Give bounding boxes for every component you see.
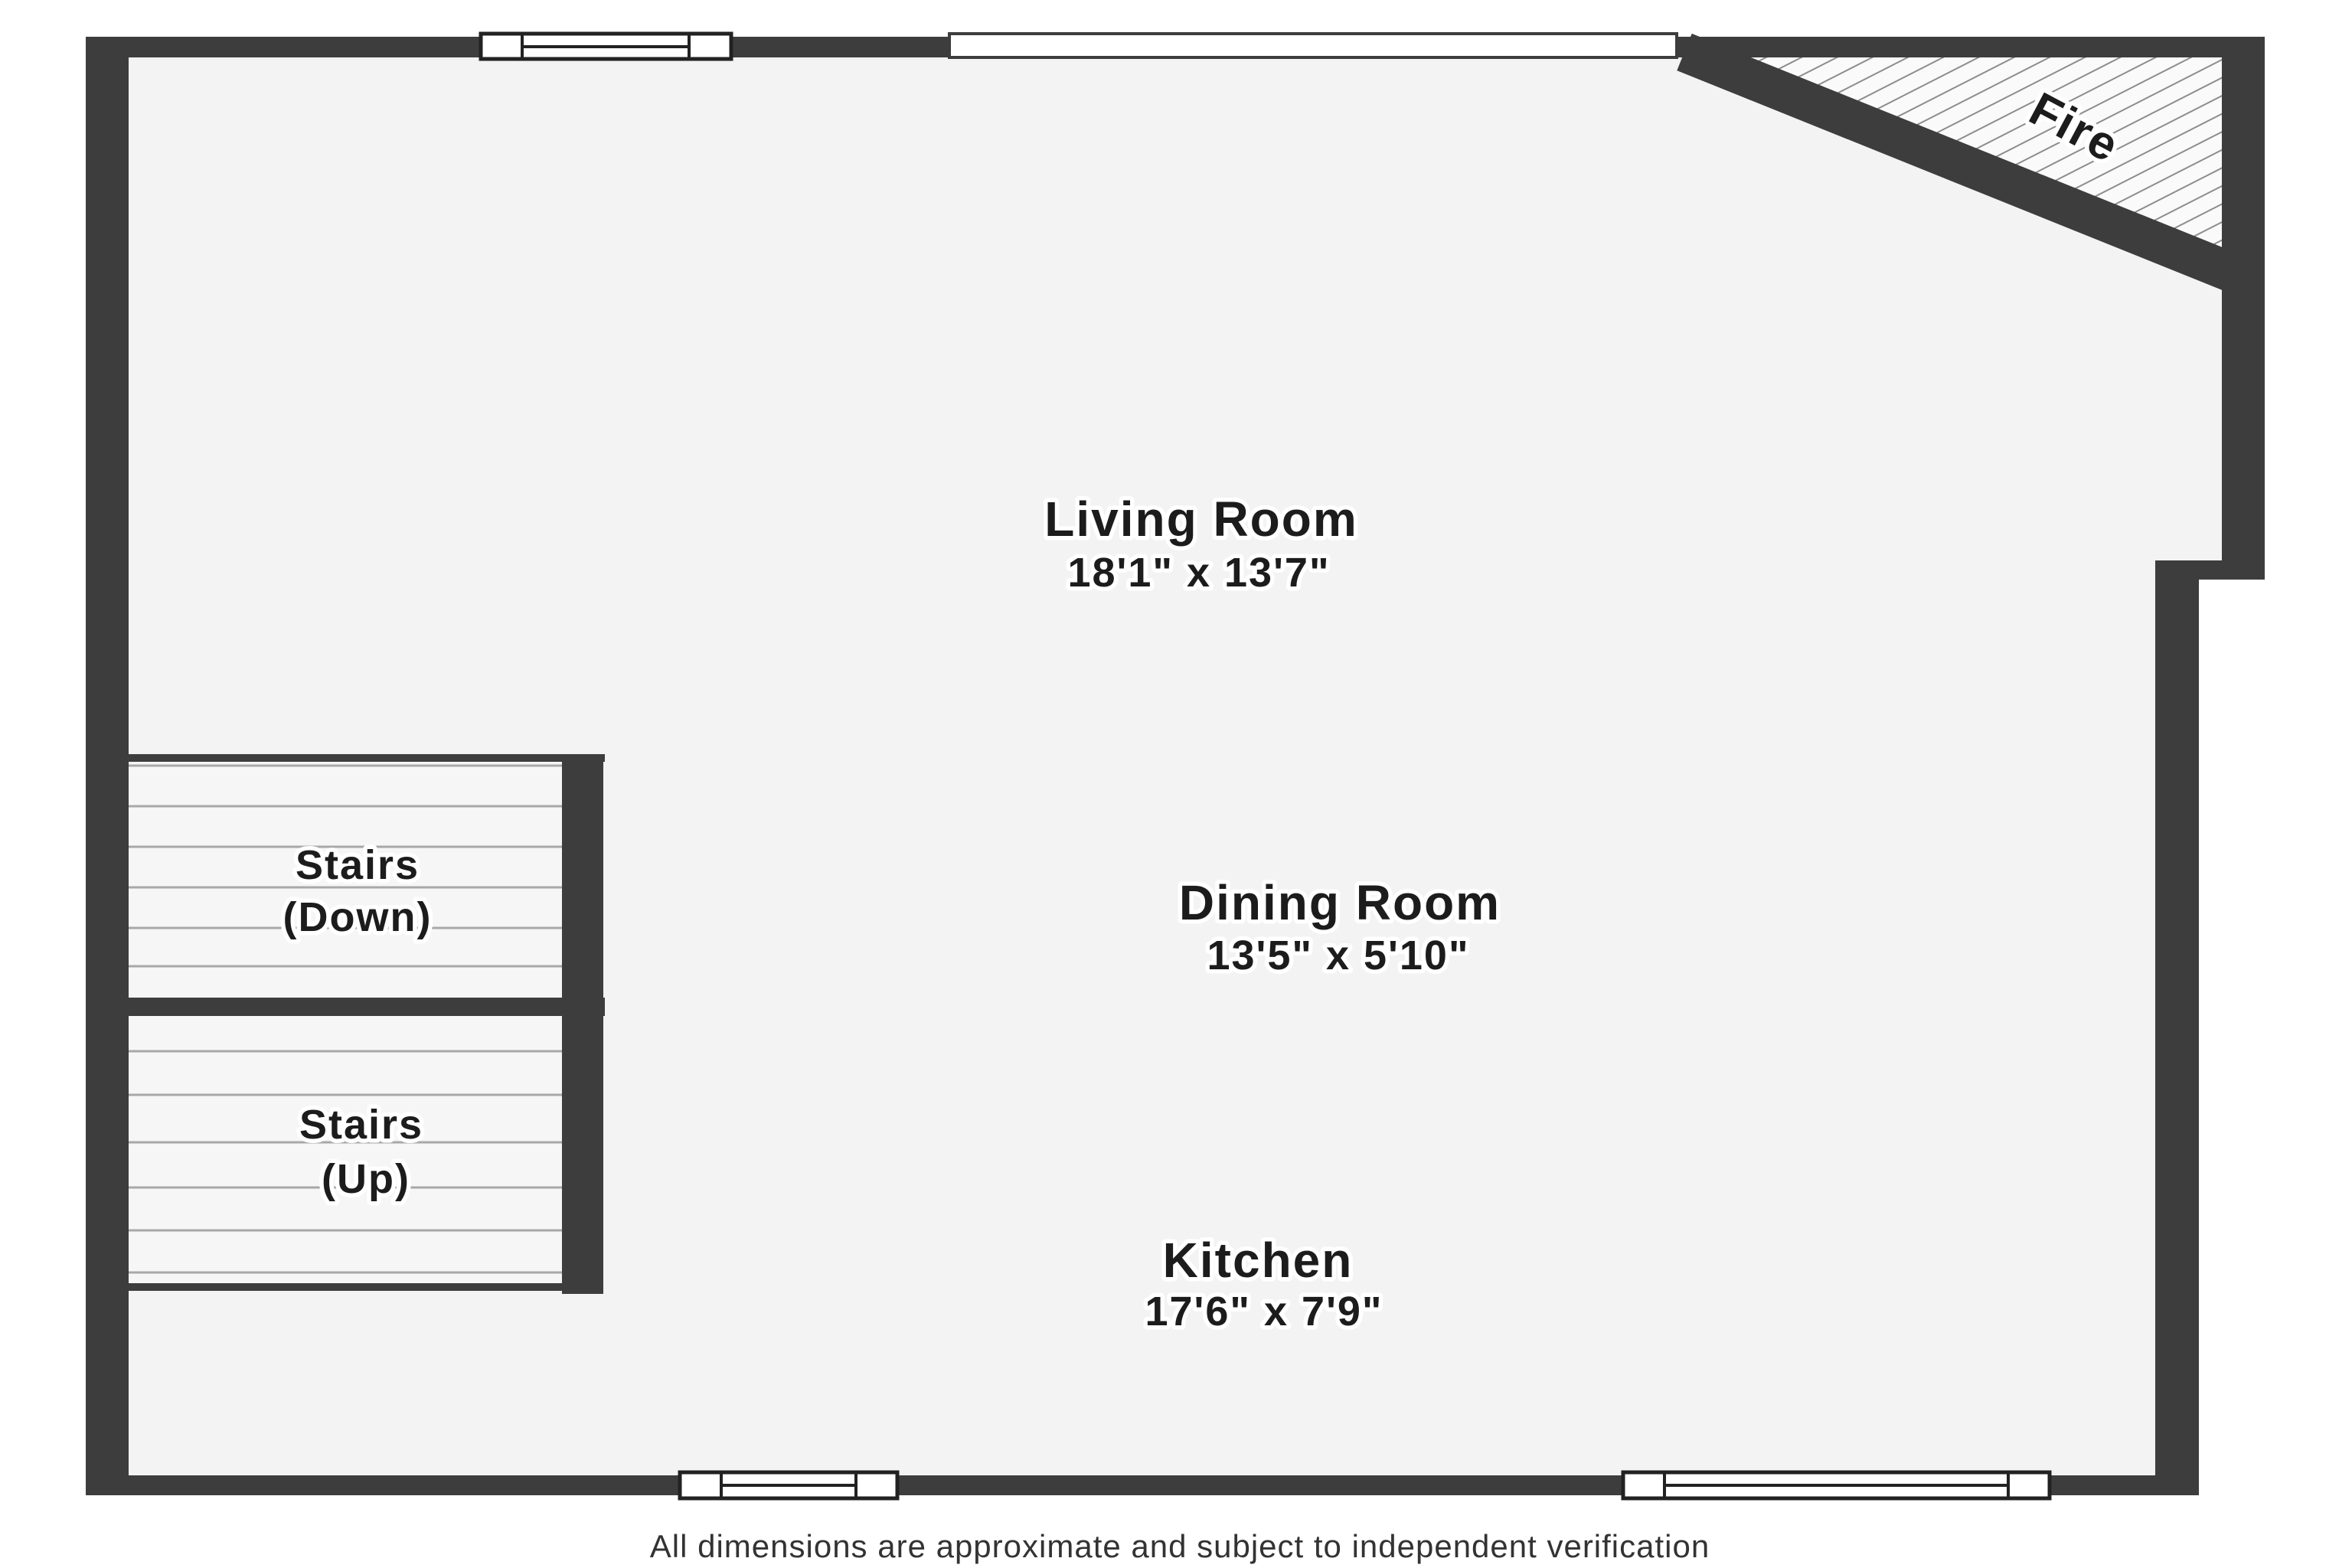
stairs-up-area — [129, 1016, 562, 1285]
stairs-down-label-line2: (Down) — [283, 894, 433, 940]
stairs-up-bottom-wall — [129, 1283, 603, 1291]
disclaimer-text: All dimensions are approximate and subje… — [650, 1528, 1710, 1564]
wall-right-upper — [2222, 37, 2265, 580]
kitchen-name: Kitchen — [1163, 1233, 1354, 1288]
floor-plan-canvas: Fire — [0, 0, 2352, 1568]
stairs-divider-wall — [86, 998, 605, 1016]
dining-room-name: Dining Room — [1179, 875, 1501, 930]
floor-plan-page: Fire — [0, 0, 2352, 1568]
stairs-down-top-wall — [129, 754, 605, 762]
stairs-down-label-line1: Stairs — [296, 842, 420, 888]
stairs-down-right-wall — [562, 754, 603, 1018]
kitchen-dimensions: 17'6" x 7'9" — [1145, 1289, 1383, 1334]
stairs-up-label-line1: Stairs — [299, 1102, 423, 1148]
stairs-down: Stairs (Down) — [129, 754, 605, 1018]
wall-left — [86, 37, 129, 1495]
wall-right-lower — [2155, 560, 2199, 1495]
window-top-left — [481, 34, 731, 59]
window-bottom-right — [1623, 1472, 2050, 1498]
stairs-up: Stairs (Up) — [129, 1016, 603, 1294]
living-room-dimensions: 18'1" x 13'7" — [1067, 550, 1330, 596]
window-bottom-left — [680, 1472, 897, 1498]
stairs-up-right-wall — [562, 1016, 603, 1294]
dining-room-dimensions: 13'5" x 5'10" — [1207, 933, 1469, 978]
living-room-name: Living Room — [1044, 492, 1358, 547]
opening-top-wide — [949, 34, 1677, 57]
stairs-up-label-line2: (Up) — [322, 1156, 410, 1202]
